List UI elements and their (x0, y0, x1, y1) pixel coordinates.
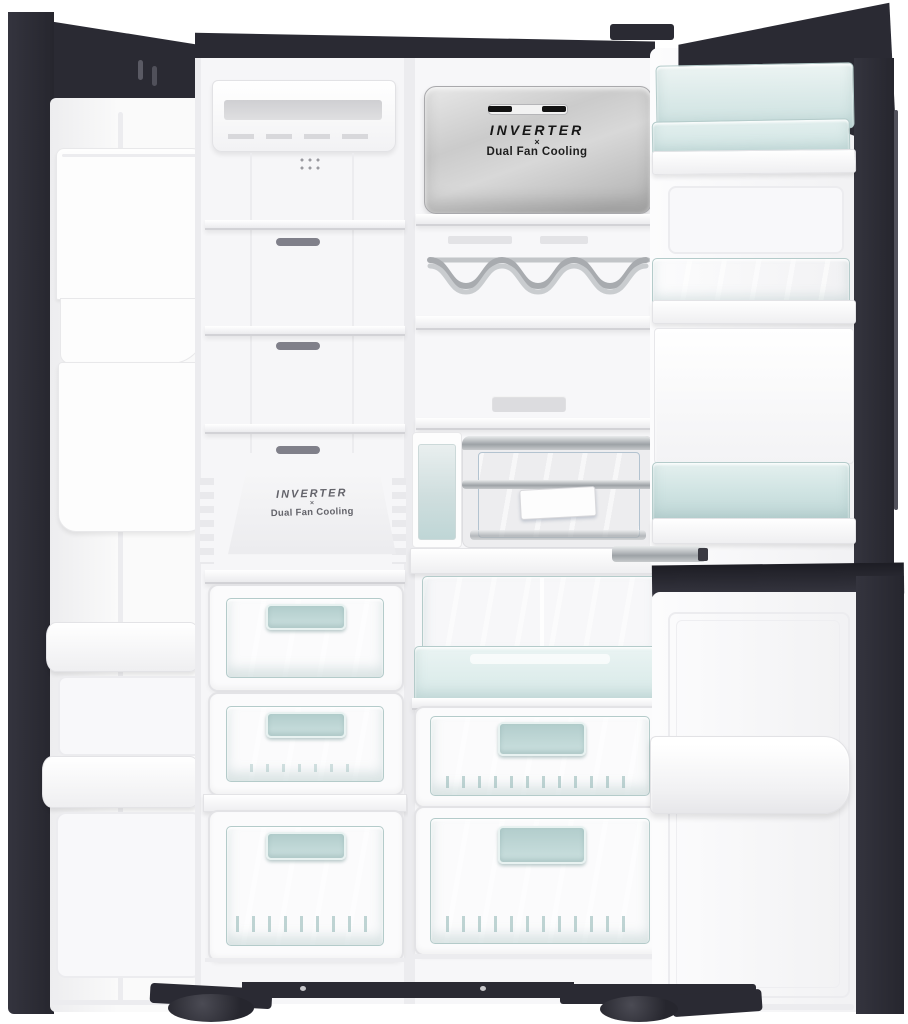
right-door-bin-1-base (652, 149, 856, 175)
freezer-compartment: INVERTER × Dual Fan Cooling (195, 58, 410, 1004)
freezer-drawer-2-handle (266, 712, 346, 738)
freezer-drawer-1-handle (266, 604, 346, 630)
left-door-recess-bottom (56, 812, 202, 978)
right-lower-door (612, 576, 908, 1024)
right-door-bin-3-base (652, 518, 856, 544)
right-upper-door-side-edge (854, 58, 894, 566)
water-tank-window (418, 444, 456, 540)
left-door-pocket-upper (46, 622, 200, 672)
left-door (0, 0, 210, 1024)
left-door-pocket-lower (42, 756, 200, 808)
lower-open-case-grip (470, 654, 610, 664)
left-door-side-edge (8, 12, 54, 1014)
left-leveling-foot (168, 994, 254, 1022)
freezer-shelf-clip-1 (276, 238, 320, 246)
inverter-panel-slot-bar-right (542, 106, 566, 112)
filter-badge (492, 396, 566, 412)
right-door-bin-3-front (652, 462, 850, 524)
right-upper-door-edge-highlight (894, 110, 898, 510)
freezer-shelf-clip-2 (276, 342, 320, 350)
ice-maker-housing-lower (58, 362, 206, 532)
left-door-screw (152, 66, 157, 86)
freezer-vent-grille (224, 100, 382, 120)
freezer-shelf-clip-3 (276, 446, 320, 454)
cabinet-top-strip (195, 28, 655, 60)
freezer-side-rail-left (200, 478, 214, 564)
inverter-panel-slot-bar-left (488, 106, 512, 112)
left-door-screw (138, 60, 143, 80)
freezer-air-vent-dots (296, 154, 324, 174)
lower-drawer-1-handle (498, 722, 586, 756)
right-door-recess-1 (668, 186, 844, 254)
fridge-wall-clip (448, 236, 512, 244)
ice-maker-housing-upper (56, 148, 206, 300)
freezer-shelf-2 (205, 326, 405, 336)
vacuum-case-label (519, 486, 596, 520)
freezer-drawer-3-rib-marks (236, 916, 372, 932)
right-door-bin-2-base (652, 300, 856, 324)
base-screw (300, 986, 306, 991)
left-door-recess-mid (58, 676, 202, 756)
base-screw (480, 986, 486, 991)
right-lower-door-side-edge (856, 576, 904, 1014)
freezer-shelf-3 (205, 424, 405, 434)
freezer-bottom-shadow (205, 958, 405, 962)
freezer-drawer-2-rib-marks (250, 764, 360, 772)
freezer-wall-seam (250, 153, 252, 453)
base-kick-plate (242, 982, 574, 998)
right-door-bin-2-front (652, 258, 850, 306)
lower-open-case-divider (540, 578, 544, 648)
right-lower-door-pocket (650, 736, 850, 814)
refrigerator-open-doors-photo: INVERTER × Dual Fan Cooling INVERTER (0, 0, 908, 1024)
fridge-wall-clip (540, 236, 588, 244)
ice-housing-step-line (62, 154, 200, 157)
freezer-wall-seam (352, 153, 354, 453)
lower-drawer-2-rib-marks (446, 916, 632, 932)
freezer-drawer-3-handle (266, 832, 346, 860)
right-door-pocket-large (654, 328, 854, 464)
middle-hinge-pin (698, 548, 708, 561)
freezer-badge-text: INVERTER × Dual Fan Cooling (228, 486, 397, 520)
ice-maker-chute (60, 298, 206, 364)
lower-drawer-1-rib-marks (446, 776, 632, 788)
freezer-shelf-1 (205, 220, 405, 230)
freezer-vent-slits (228, 134, 378, 139)
middle-hinge (612, 546, 706, 562)
freezer-drawer-top-rail (205, 570, 405, 584)
lower-drawer-2-handle (498, 826, 586, 864)
right-leveling-foot (600, 996, 678, 1022)
right-upper-door (612, 0, 908, 592)
